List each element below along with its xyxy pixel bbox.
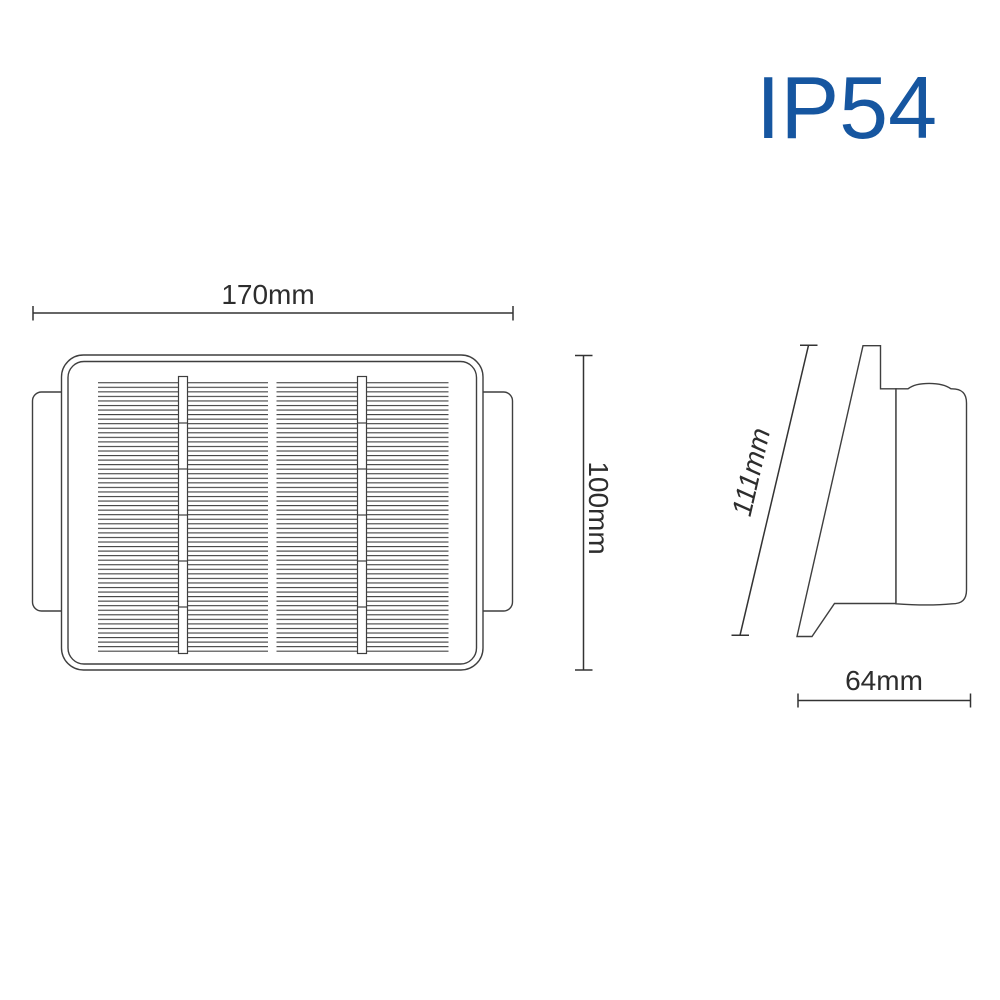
ip-rating-label: IP54 (756, 58, 937, 157)
side-mount-body (896, 383, 967, 605)
width-dimension: 170mm (33, 279, 513, 321)
depth-dimension-label: 64mm (845, 665, 923, 696)
width-dimension-label: 170mm (221, 279, 314, 310)
diagram-svg: 170mm 100mm 111mm 64mm IP54 (0, 0, 1000, 1000)
busbar-left (179, 377, 188, 654)
front-view (33, 355, 513, 670)
dimension-diagram: 170mm 100mm 111mm 64mm IP54 (0, 0, 1000, 1000)
height-dimension: 100mm (575, 356, 614, 671)
busbar-right (358, 377, 367, 654)
depth-dimension: 64mm (798, 665, 971, 708)
height-dimension-label: 100mm (583, 461, 614, 554)
side-wedge-profile (797, 346, 896, 637)
slant-dimension-label: 111mm (726, 425, 776, 519)
side-view (797, 346, 967, 637)
slant-dimension: 111mm (726, 345, 818, 635)
